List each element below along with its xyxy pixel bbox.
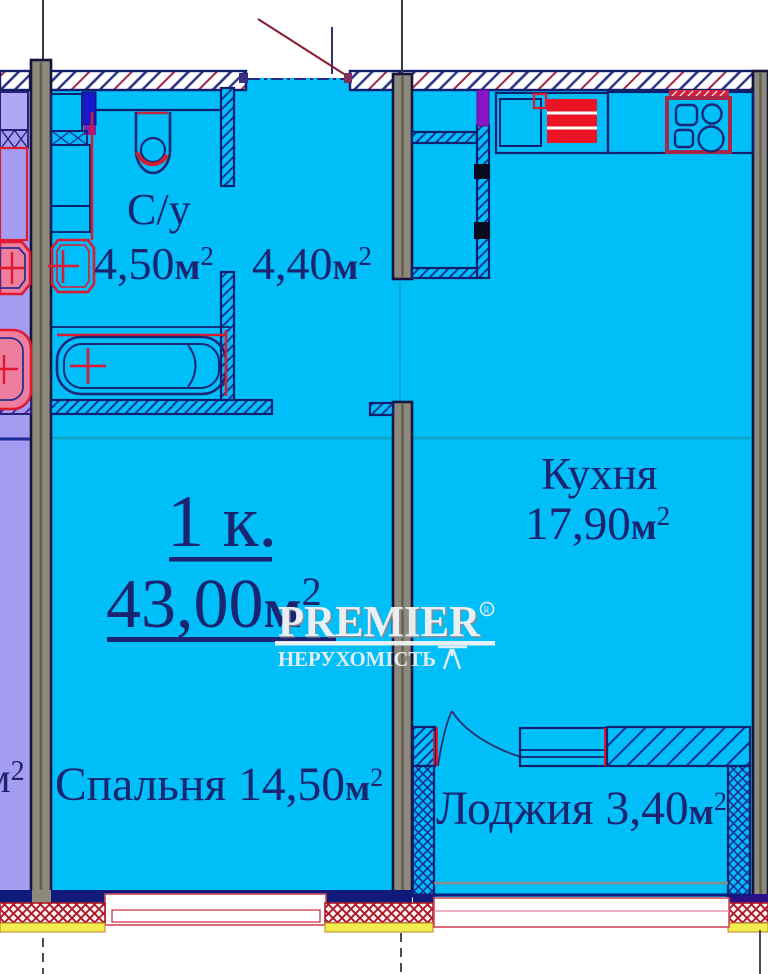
svg-text:Лоджия 3,40м2: Лоджия 3,40м2 bbox=[436, 783, 727, 835]
svg-text:Кухня: Кухня bbox=[541, 449, 657, 499]
svg-text:4,40м2: 4,40м2 bbox=[252, 238, 372, 289]
svg-text:1 к.: 1 к. bbox=[167, 481, 277, 563]
svg-text:R: R bbox=[484, 605, 490, 615]
svg-text:PREMIER: PREMIER bbox=[278, 597, 481, 646]
svg-text:17,90м2: 17,90м2 bbox=[525, 498, 670, 550]
svg-text:С/у: С/у bbox=[127, 185, 191, 234]
svg-text:4,50м2: 4,50м2 bbox=[94, 238, 214, 289]
svg-text:Спальня 14,50м2: Спальня 14,50м2 bbox=[55, 759, 383, 811]
svg-text:НЕРУХОМІСТЬ: НЕРУХОМІСТЬ bbox=[278, 647, 436, 671]
